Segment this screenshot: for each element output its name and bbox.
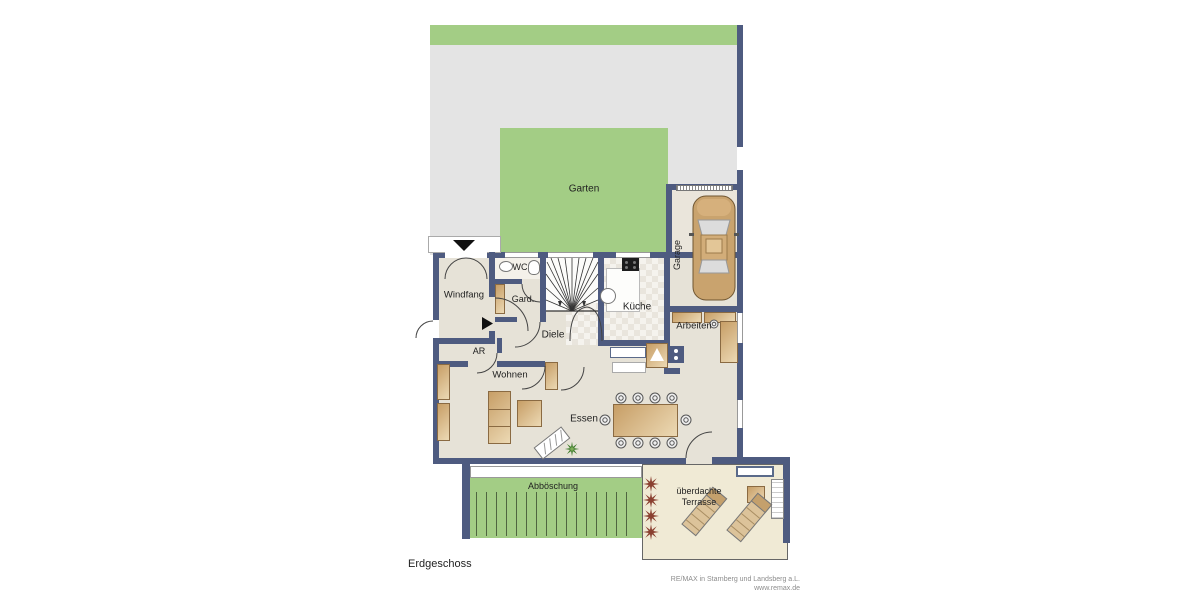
footer-credit: RE/MAX in Starnberg und Landsberg a.L. w… <box>600 575 800 594</box>
walkway <box>470 466 642 478</box>
garage-door <box>676 185 733 191</box>
window-stairs <box>548 252 593 258</box>
terrace-bench <box>736 466 774 477</box>
gard-wardrobe <box>495 284 505 314</box>
hall-cabinet-stub <box>545 362 558 390</box>
wall-ar-right <box>497 338 502 353</box>
floor-title: Erdgeschoss <box>408 558 472 570</box>
wall-windfang-bottom <box>433 338 495 344</box>
wohnen-sideboard-2 <box>437 403 450 441</box>
footer-company: RE/MAX in Starnberg und Landsberg a.L. <box>600 575 800 584</box>
wall-kueche-right <box>664 252 670 345</box>
terrace-floor <box>642 464 788 560</box>
gate-opening <box>737 147 743 170</box>
kitchen-sink <box>600 288 616 304</box>
label-terrasse: überdachte Terrasse <box>659 486 739 509</box>
label-windfang: Windfang <box>444 290 484 301</box>
terrace-wall-right <box>783 457 790 543</box>
label-arbeiten: Arbeiten <box>676 321 711 332</box>
window-arbeiten <box>737 313 743 343</box>
label-kueche: Küche <box>623 302 651 313</box>
label-abboeschung: Abböschung <box>528 481 578 491</box>
window-kueche <box>616 252 650 258</box>
label-terrasse-line1: überdachte <box>659 486 739 497</box>
wohnen-sideboard-1 <box>437 364 450 400</box>
fireplace <box>646 343 668 368</box>
terrace-table <box>747 486 765 503</box>
coffee-table <box>517 400 542 427</box>
wall-wc-right <box>540 252 546 322</box>
label-wohnen: Wohnen <box>492 370 527 381</box>
label-garage: Garage <box>672 218 682 270</box>
wc-toilet <box>528 260 540 275</box>
footer-website: www.remax.de <box>600 584 800 593</box>
dining-table <box>613 404 678 437</box>
sofa <box>488 391 511 444</box>
terrace-wall-top <box>712 457 790 464</box>
shelf-below-kitchen <box>612 362 646 373</box>
entry-door-opening <box>445 252 487 258</box>
side-door-opening <box>433 320 439 338</box>
grass-strip-top <box>430 25 739 45</box>
entrance-canopy <box>428 236 501 253</box>
terrace-door-opening <box>686 458 712 464</box>
wall-essen-arbeiten-stub <box>664 368 680 374</box>
wall-gard-bottom <box>495 317 517 322</box>
label-gard: Gard. <box>512 294 535 304</box>
label-terrasse-line2: Terrasse <box>659 497 739 508</box>
label-wc: WC <box>513 262 528 272</box>
desk <box>720 321 738 363</box>
stove <box>622 258 639 271</box>
counter-below-kitchen <box>610 347 646 358</box>
wc-sink <box>499 261 513 272</box>
retaining-wall <box>462 463 470 539</box>
window-essen <box>737 400 743 428</box>
label-essen: Essen <box>570 414 598 425</box>
wall-wohnen-top-b <box>497 361 545 367</box>
window-wc <box>505 252 538 258</box>
terrace-lounger-right <box>771 479 784 519</box>
label-diele: Diele <box>542 330 565 341</box>
label-ar: AR <box>473 346 486 356</box>
abboeschung-hatch <box>476 492 636 536</box>
label-garten: Garten <box>569 184 600 195</box>
fireplace-panel <box>668 346 684 363</box>
floor-plan: Garten Garage Windfang WC Gard. Küche Di… <box>0 0 1200 600</box>
